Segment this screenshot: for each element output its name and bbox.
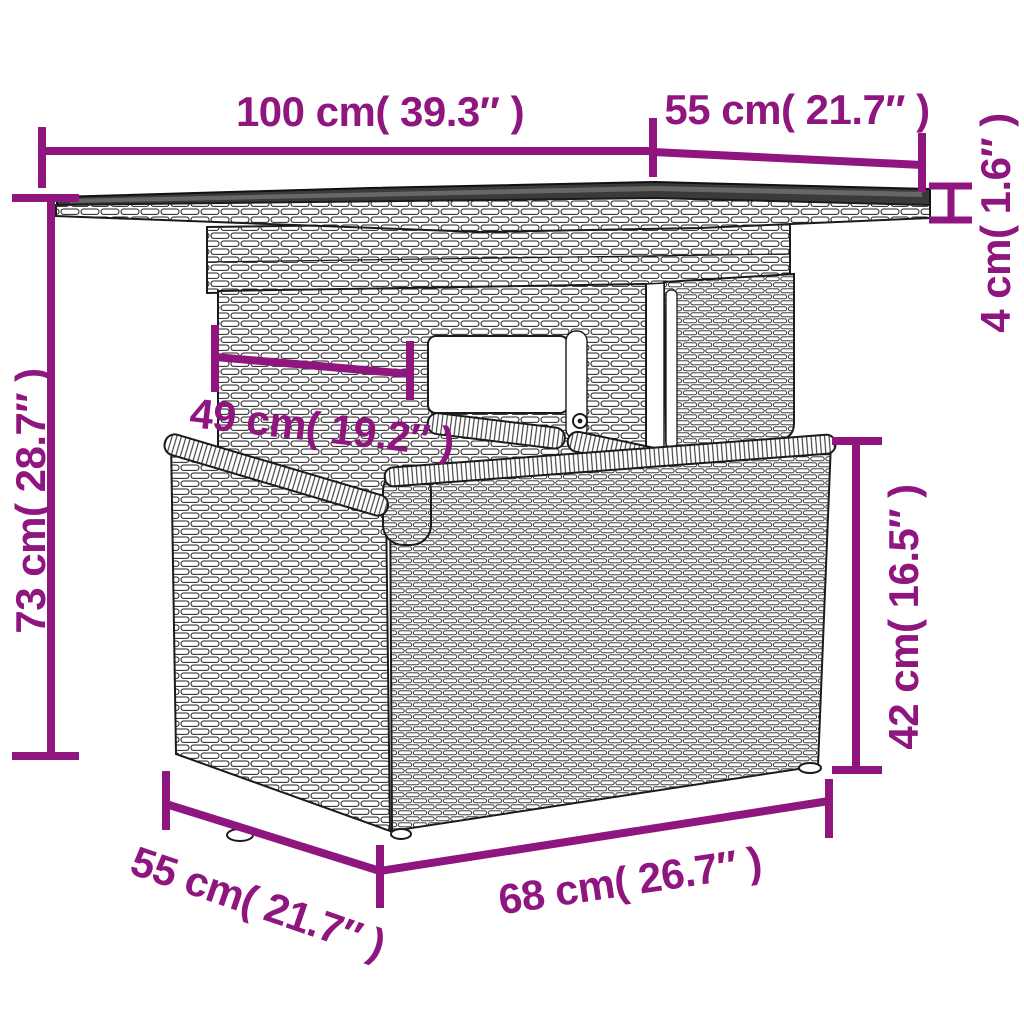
tabletop-wicker-band: [56, 198, 930, 232]
label-total-height: 73 cm( 28.7″ ): [7, 368, 55, 633]
label-tabletop-depth: 55 cm( 21.7″ ): [664, 86, 929, 134]
pedestal-right-panel: [664, 274, 794, 452]
pedestal-window: [428, 336, 568, 413]
dimension-line-base-height: [832, 441, 882, 770]
base-foot-front: [391, 829, 411, 839]
product-dimension-diagram: 100 cm( 39.3″ ) 55 cm( 21.7″ ) 4 cm( 1.6…: [0, 0, 1024, 1024]
base-foot-right: [799, 763, 821, 773]
pedestal-gap: [646, 283, 664, 458]
label-tabletop-thickness: 4 cm( 1.6″ ): [972, 113, 1020, 333]
label-tabletop-width: 100 cm( 39.3″ ): [236, 88, 524, 136]
connector-knob-center: [578, 419, 583, 424]
tabletop: [56, 182, 930, 232]
base-box: [162, 432, 836, 841]
label-base-height: 42 cm( 16.5″ ): [880, 484, 928, 749]
dimension-line-tabletop-thickness: [929, 186, 972, 220]
base-right-face: [390, 442, 831, 831]
pedestal-post: [666, 290, 677, 448]
